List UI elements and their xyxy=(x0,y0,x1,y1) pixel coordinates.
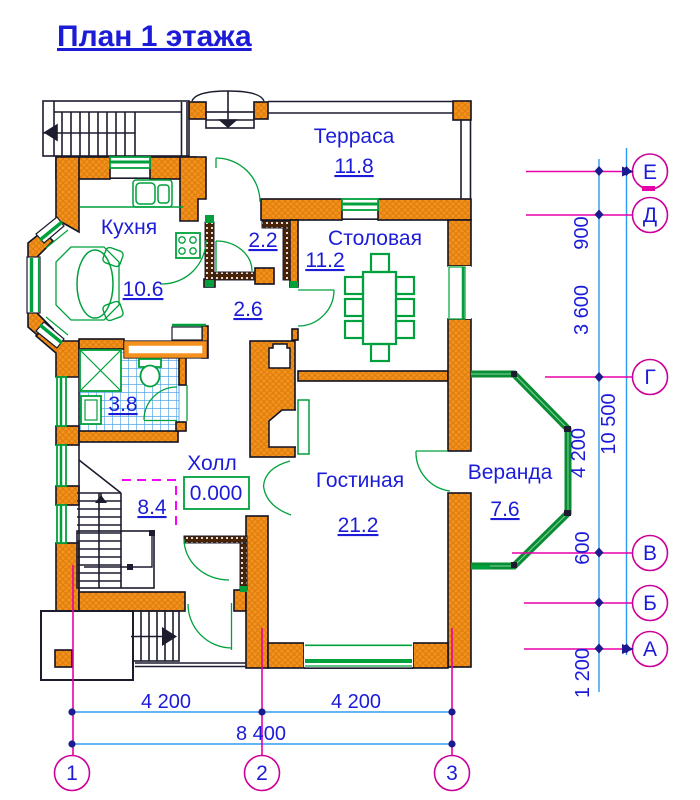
svg-text:8.4: 8.4 xyxy=(137,496,167,519)
svg-text:11.8: 11.8 xyxy=(334,155,373,178)
svg-text:А: А xyxy=(643,638,657,661)
svg-text:2: 2 xyxy=(256,762,268,785)
svg-text:0.000: 0.000 xyxy=(190,482,243,505)
svg-text:Веранда: Веранда xyxy=(468,461,553,484)
svg-text:Холл: Холл xyxy=(187,452,237,475)
svg-text:Д: Д xyxy=(643,204,657,227)
svg-text:Столовая: Столовая xyxy=(328,227,422,250)
svg-text:Е: Е xyxy=(643,161,657,184)
svg-text:4 200: 4 200 xyxy=(141,691,191,713)
svg-text:3.8: 3.8 xyxy=(108,393,137,416)
svg-text:Терраса: Терраса xyxy=(314,125,395,148)
svg-text:В: В xyxy=(643,542,657,565)
svg-text:Гостиная: Гостиная xyxy=(316,469,404,492)
svg-text:11.2: 11.2 xyxy=(305,249,344,272)
svg-text:1 200: 1 200 xyxy=(572,648,594,698)
svg-text:600: 600 xyxy=(572,531,594,564)
svg-text:21.2: 21.2 xyxy=(338,514,379,537)
svg-text:Кухня: Кухня xyxy=(101,216,157,239)
svg-text:900: 900 xyxy=(571,216,593,249)
svg-text:1: 1 xyxy=(66,762,78,785)
svg-text:3 600: 3 600 xyxy=(571,285,593,335)
svg-text:7.6: 7.6 xyxy=(490,498,519,521)
svg-text:10.6: 10.6 xyxy=(123,278,164,301)
svg-text:3: 3 xyxy=(446,762,458,785)
svg-text:Г: Г xyxy=(644,366,655,389)
svg-text:2.6: 2.6 xyxy=(233,298,262,321)
svg-text:4 200: 4 200 xyxy=(331,691,381,713)
svg-text:10 500: 10 500 xyxy=(598,393,620,454)
svg-text:2.2: 2.2 xyxy=(248,229,277,252)
svg-text:Б: Б xyxy=(643,592,657,615)
svg-text:План 1 этажа: План 1 этажа xyxy=(57,20,252,53)
svg-text:4 200: 4 200 xyxy=(568,428,590,478)
svg-text:8 400: 8 400 xyxy=(236,723,286,745)
